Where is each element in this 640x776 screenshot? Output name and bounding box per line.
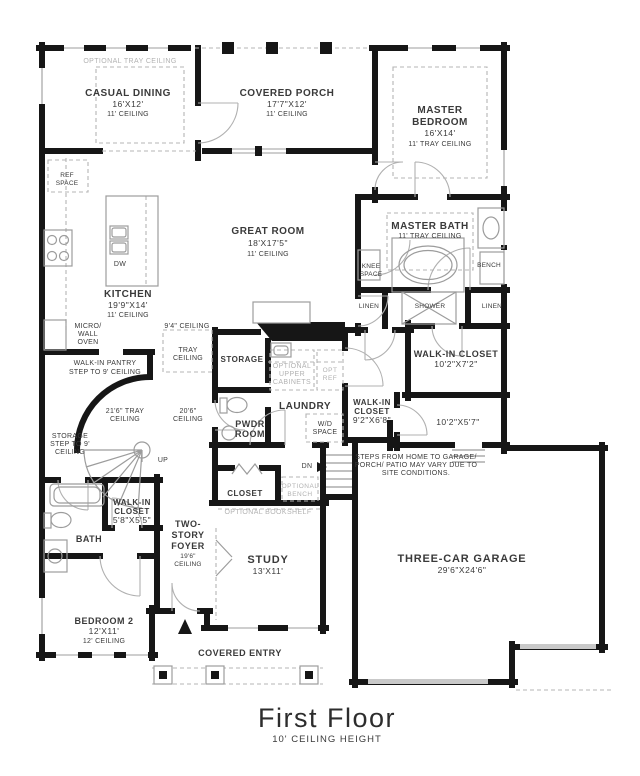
label-opt-bench-2: BENCH bbox=[287, 491, 312, 498]
floor-title: First Floor bbox=[258, 703, 396, 733]
label-dw: DW bbox=[114, 261, 126, 268]
label-covered-entry: COVERED ENTRY bbox=[198, 648, 282, 658]
label-study-dims: 13'X11' bbox=[253, 566, 284, 576]
label-wic-master-dims: 10'2"X7'2" bbox=[434, 359, 478, 369]
label-master-bath-ceiling: 11' TRAY CEILING bbox=[398, 233, 461, 240]
label-wd-1: W/D bbox=[318, 421, 333, 428]
label-pantry-2: STEP TO 9' CEILING bbox=[69, 369, 141, 376]
label-casual-dining-ceiling: 11' CEILING bbox=[107, 111, 149, 118]
label-opt-bookshelf: OPTIONAL BOOKSHELF bbox=[224, 509, 311, 516]
label-kitchen: KITCHEN bbox=[104, 289, 152, 300]
label-wic-bed2-dims: 5'8"X5'5" bbox=[113, 515, 151, 525]
label-bath2: BATH bbox=[76, 534, 102, 544]
label-206-1: 20'6" bbox=[179, 408, 196, 415]
label-micro-2: WALL bbox=[78, 331, 98, 338]
label-pantry-1: WALK-IN PANTRY bbox=[74, 360, 137, 367]
label-tray-ceiling-1: TRAY bbox=[178, 347, 197, 354]
label-garage: THREE-CAR GARAGE bbox=[398, 553, 527, 565]
label-wic-hall-1: WALK-IN bbox=[353, 398, 391, 407]
label-wic-bed2-1: WALK-IN bbox=[113, 498, 151, 507]
label-master-bedroom-ceiling: 11' TRAY CEILING bbox=[408, 141, 471, 148]
label-steps-note-3: SITE CONDITIONS. bbox=[382, 470, 450, 477]
label-casual-dining-dims: 16'X12' bbox=[112, 99, 143, 109]
label-storage-stairs-2: STEP TO 9' bbox=[50, 441, 90, 448]
label-steps-note-2: PORCH/ PATIO MAY VARY DUE TO bbox=[355, 462, 478, 469]
label-covered-porch-dims: 17'7"X12' bbox=[267, 99, 307, 109]
label-206-2: CEILING bbox=[173, 416, 203, 423]
label-garage-dims: 29'6"X24'6" bbox=[438, 565, 487, 575]
label-opt-cabinets-3: CABINETS bbox=[273, 379, 311, 386]
label-great-room-ceiling: 11' CEILING bbox=[247, 251, 289, 258]
floor-subtitle: 10' CEILING HEIGHT bbox=[272, 734, 382, 745]
label-kitchen-dims: 19'9"X14' bbox=[108, 300, 148, 310]
label-foyer-1: TWO- bbox=[175, 519, 201, 529]
label-casual-dining: CASUAL DINING bbox=[85, 88, 171, 99]
label-opt-cabinets-2: UPPER bbox=[279, 371, 305, 378]
label-closet: CLOSET bbox=[227, 489, 262, 498]
label-bench: BENCH bbox=[477, 262, 501, 269]
label-wic-master: WALK-IN CLOSET bbox=[414, 349, 499, 359]
label-94-ceiling: 9'4" CEILING bbox=[164, 323, 209, 330]
label-study: STUDY bbox=[247, 554, 288, 566]
label-master-bedroom-dims: 16'X14' bbox=[424, 128, 455, 138]
label-great-room: GREAT ROOM bbox=[231, 226, 304, 237]
label-master-bedroom-2: BEDROOM bbox=[412, 117, 468, 128]
label-covered-porch: COVERED PORCH bbox=[240, 88, 335, 99]
label-pwdr-2: ROOM bbox=[235, 429, 265, 439]
label-foyer-dims: 19'6" bbox=[180, 553, 196, 560]
label-kitchen-ceiling: 11' CEILING bbox=[107, 312, 149, 319]
label-knee-1: KNEE bbox=[362, 263, 381, 270]
label-micro-1: MICRO/ bbox=[74, 323, 101, 330]
label-opt-bench-1: OPTIONAL bbox=[282, 483, 319, 490]
label-foyer-2: STORY bbox=[171, 530, 204, 540]
label-storage-stairs-1: STORAGE bbox=[52, 433, 88, 440]
label-bedroom2-dims: 12'X11' bbox=[89, 626, 120, 636]
floor-plan: OPTIONAL TRAY CEILING CASUAL DINING 16'X… bbox=[0, 0, 640, 776]
label-foyer-3: FOYER bbox=[171, 541, 205, 551]
label-great-room-dims: 18'X17'5" bbox=[248, 238, 288, 248]
label-linen-left: LINEN bbox=[359, 303, 379, 310]
label-storage: STORAGE bbox=[221, 355, 264, 364]
label-knee-2: SPACE bbox=[360, 271, 383, 278]
label-mud-hall-dims: 10'2"X5'7" bbox=[436, 417, 480, 427]
label-foyer-ceiling: CEILING bbox=[174, 561, 201, 568]
fireplace-icon bbox=[253, 302, 310, 323]
label-ref-space-1: REF bbox=[60, 172, 74, 179]
label-storage-stairs-3: CEILING bbox=[55, 449, 85, 456]
garage-door-icon bbox=[520, 644, 596, 649]
label-216-tray-2: CEILING bbox=[110, 416, 140, 423]
label-micro-3: OVEN bbox=[77, 339, 98, 346]
label-opt-ref-2: REF bbox=[323, 375, 338, 382]
label-covered-porch-ceiling: 11' CEILING bbox=[266, 111, 308, 118]
label-up: UP bbox=[158, 457, 168, 464]
label-tray-ceiling-2: CEILING bbox=[173, 355, 203, 362]
label-laundry: LAUNDRY bbox=[279, 401, 331, 412]
label-pwdr-1: PWDR bbox=[235, 419, 265, 429]
label-bedroom2: BEDROOM 2 bbox=[74, 616, 133, 626]
label-ref-space-2: SPACE bbox=[56, 180, 79, 187]
label-master-bath: MASTER BATH bbox=[391, 221, 469, 232]
label-optional-tray-ceiling: OPTIONAL TRAY CEILING bbox=[83, 58, 176, 65]
label-shower: SHOWER bbox=[415, 303, 446, 310]
label-216-tray-1: 21'6" TRAY bbox=[106, 408, 144, 415]
label-wd-2: SPACE bbox=[313, 429, 338, 436]
label-steps-note-1: STEPS FROM HOME TO GARAGE/ bbox=[355, 454, 477, 461]
label-linen-right: LINEN bbox=[482, 303, 502, 310]
garage-door-icon-2 bbox=[368, 679, 488, 684]
label-wic-hall-dims: 9'2"X6'8" bbox=[353, 415, 391, 425]
label-opt-cabinets-1: OPTIONAL bbox=[273, 363, 312, 370]
label-master-bedroom-1: MASTER bbox=[417, 105, 463, 116]
label-dn: DN bbox=[302, 463, 313, 470]
label-opt-ref-1: OPT bbox=[323, 367, 338, 374]
label-bedroom2-ceiling: 12' CEILING bbox=[83, 638, 125, 645]
